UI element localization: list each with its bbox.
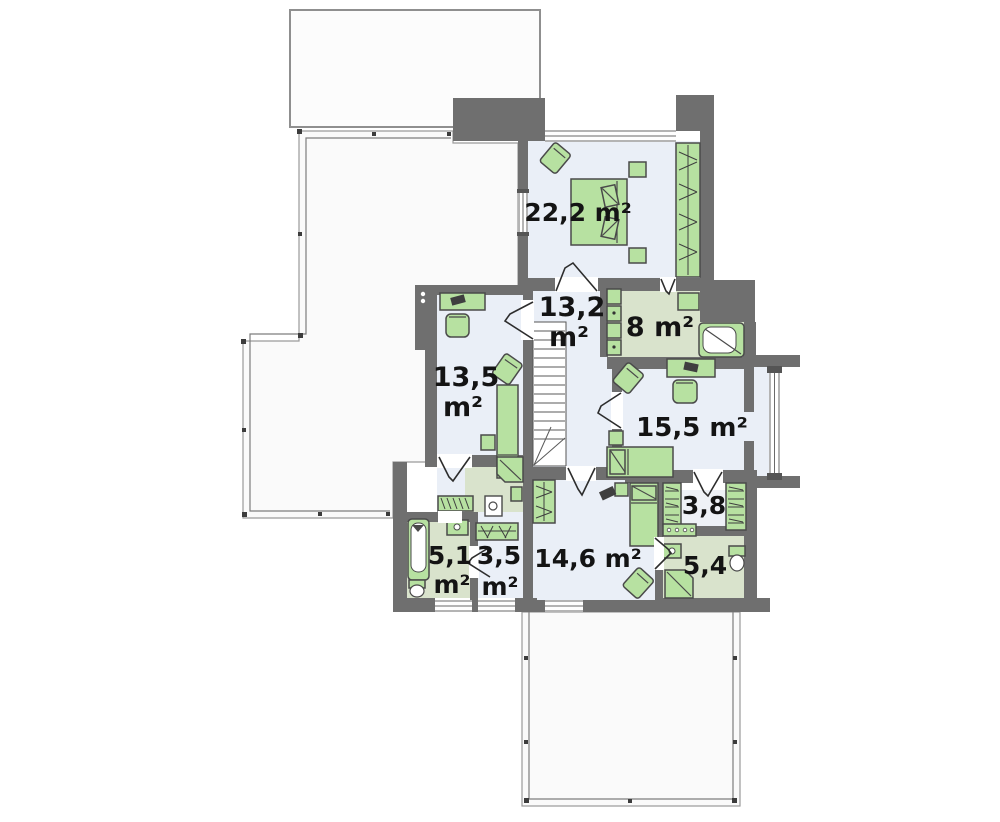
bottom-balcony xyxy=(522,612,740,806)
room-label-bedroom-22: 22,2 m² xyxy=(524,198,631,227)
window-balcony-bedroom-14 xyxy=(545,600,583,612)
single-bed-icon xyxy=(630,483,658,546)
window-utility-35 xyxy=(478,600,515,612)
room-label-utility-35: 3,5 xyxy=(477,541,521,570)
room-label-bathroom-51: 5,1 xyxy=(428,541,472,570)
shelf-icon xyxy=(511,487,522,501)
single-bed-icon xyxy=(607,447,673,477)
washing-machine-icon xyxy=(485,496,502,516)
hanging-rail-icon xyxy=(476,523,518,540)
room-label-wardrobe-38: 3,8 xyxy=(682,491,726,520)
door-passage xyxy=(438,511,462,523)
room-label-hall: 13,2 xyxy=(539,292,606,323)
nightstand-icon xyxy=(615,483,628,496)
desk-chair-icon xyxy=(446,314,469,337)
floor-plan-svg: 22,2 m² 13,2 m² 8 m² 13,5 m² 15,5 m² 3,8… xyxy=(0,0,1000,822)
toilet-icon xyxy=(409,580,425,597)
wardrobe-icon xyxy=(533,480,555,523)
desk-icon xyxy=(440,293,485,310)
room-label-bedroom-13-unit: m² xyxy=(443,392,483,423)
room-label-bedroom-13: 13,5 xyxy=(433,362,500,393)
corner-shower-icon xyxy=(497,457,523,482)
room-label-utility-35-unit: m² xyxy=(482,572,519,601)
radiator-icon xyxy=(438,496,473,511)
desk-icon xyxy=(667,359,715,377)
room-label-bedroom-14: 14,6 m² xyxy=(534,544,641,573)
room-label-hall-unit: m² xyxy=(549,322,589,353)
room-label-bathroom-51-unit: m² xyxy=(434,570,471,599)
window-bathroom-51 xyxy=(435,600,472,612)
door-bathroom-8 xyxy=(660,277,676,294)
room-label-bathroom-54: 5,4 xyxy=(683,551,727,580)
nightstand-icon xyxy=(481,435,495,450)
window-bay-bedroom-15 xyxy=(767,366,782,480)
bathtub-icon xyxy=(699,323,744,357)
window-top-bedroom-22 xyxy=(545,130,676,142)
room-label-bedroom-15: 15,5 m² xyxy=(636,413,748,443)
room-label-bathroom-8: 8 m² xyxy=(626,312,694,343)
floor-plan-canvas: 22,2 m² 13,2 m² 8 m² 13,5 m² 15,5 m² 3,8… xyxy=(0,0,1000,822)
nightstand-icon xyxy=(609,431,623,445)
wardrobe-icon xyxy=(676,143,700,277)
bathtub-icon xyxy=(408,519,429,580)
toilet-icon xyxy=(729,546,745,571)
desk-chair-icon xyxy=(673,380,697,403)
